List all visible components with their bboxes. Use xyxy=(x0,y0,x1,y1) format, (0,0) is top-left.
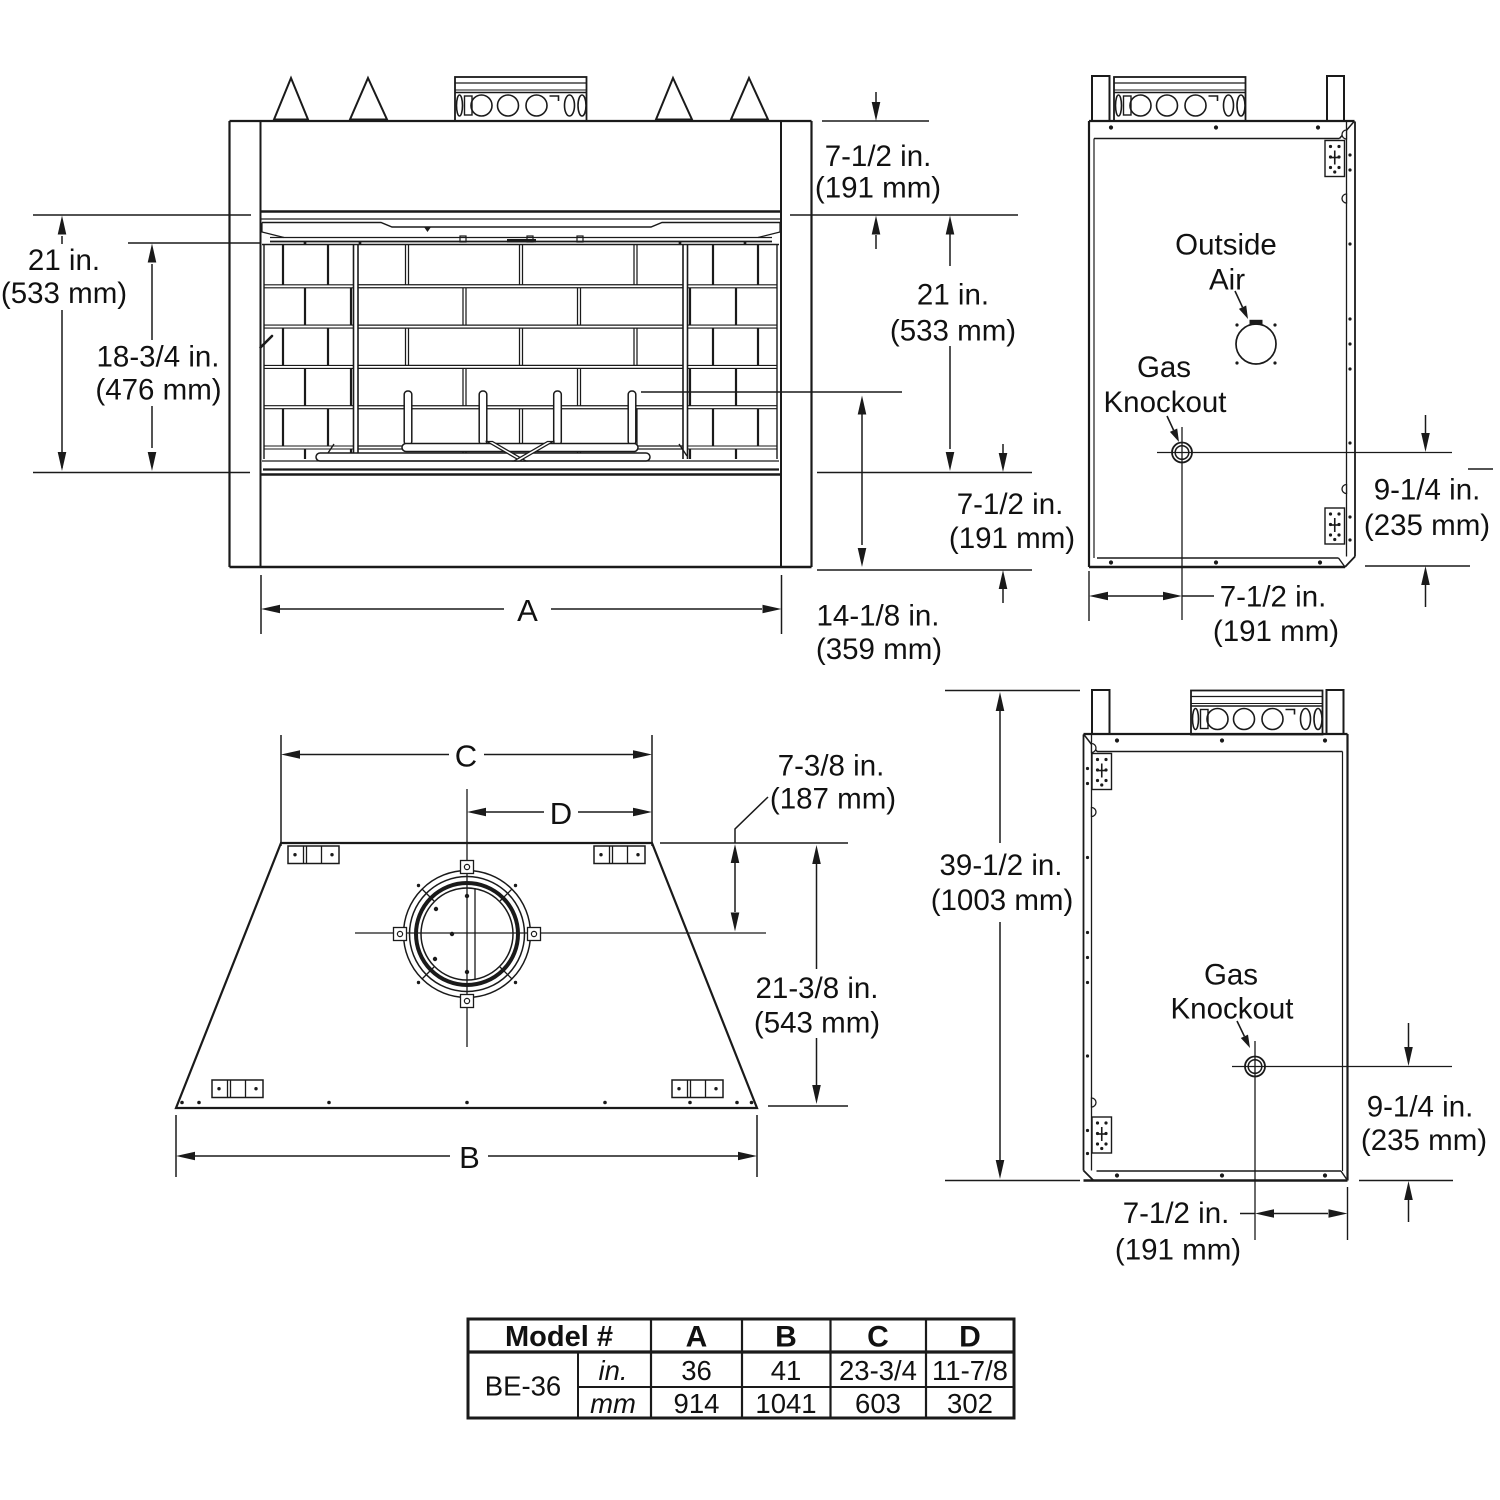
svg-text:36: 36 xyxy=(681,1355,712,1386)
svg-text:mm: mm xyxy=(590,1388,636,1419)
svg-text:D: D xyxy=(550,796,572,831)
svg-text:in.: in. xyxy=(598,1355,627,1386)
svg-text:302: 302 xyxy=(947,1388,993,1419)
svg-text:B: B xyxy=(459,1140,480,1175)
svg-text:(476 mm): (476 mm) xyxy=(95,374,221,407)
svg-text:41: 41 xyxy=(771,1355,802,1386)
svg-text:23-3/4: 23-3/4 xyxy=(839,1355,917,1386)
svg-text:(191 mm): (191 mm) xyxy=(1213,615,1339,648)
svg-text:Knockout: Knockout xyxy=(1171,993,1294,1026)
svg-text:A: A xyxy=(517,593,538,628)
svg-text:Knockout: Knockout xyxy=(1104,386,1227,419)
svg-text:7-3/8 in.: 7-3/8 in. xyxy=(778,750,885,783)
svg-text:(1003 mm): (1003 mm) xyxy=(931,884,1074,917)
svg-text:18-3/4 in.: 18-3/4 in. xyxy=(97,341,220,374)
svg-text:14-1/8 in.: 14-1/8 in. xyxy=(817,600,940,633)
svg-text:C: C xyxy=(867,1321,889,1354)
svg-text:BE-36: BE-36 xyxy=(485,1371,561,1402)
svg-text:Gas: Gas xyxy=(1204,959,1258,992)
svg-text:(533 mm): (533 mm) xyxy=(890,315,1016,348)
svg-text:9-1/4 in.: 9-1/4 in. xyxy=(1374,474,1481,507)
svg-text:(533 mm): (533 mm) xyxy=(1,277,127,310)
svg-text:21 in.: 21 in. xyxy=(28,244,100,277)
svg-text:7-1/2 in.: 7-1/2 in. xyxy=(1220,581,1327,614)
svg-text:(187 mm): (187 mm) xyxy=(770,783,896,816)
svg-text:Air: Air xyxy=(1209,264,1245,297)
svg-text:11-7/8: 11-7/8 xyxy=(932,1355,1008,1386)
svg-text:914: 914 xyxy=(674,1388,720,1419)
svg-text:(191 mm): (191 mm) xyxy=(815,172,941,205)
svg-text:Model #: Model # xyxy=(505,1321,613,1353)
svg-text:D: D xyxy=(959,1321,981,1354)
svg-text:9-1/4 in.: 9-1/4 in. xyxy=(1367,1091,1474,1124)
svg-text:Gas: Gas xyxy=(1137,351,1191,384)
svg-text:1041: 1041 xyxy=(755,1388,816,1419)
svg-text:A: A xyxy=(686,1321,708,1354)
svg-text:(235 mm): (235 mm) xyxy=(1364,509,1490,542)
svg-text:7-1/2 in.: 7-1/2 in. xyxy=(957,488,1064,521)
svg-text:(191 mm): (191 mm) xyxy=(1115,1234,1241,1267)
svg-text:21 in.: 21 in. xyxy=(917,279,989,312)
svg-text:B: B xyxy=(775,1321,797,1354)
svg-text:21-3/8 in.: 21-3/8 in. xyxy=(756,972,879,1005)
svg-text:603: 603 xyxy=(855,1388,901,1419)
svg-text:C: C xyxy=(455,739,477,774)
svg-text:(235 mm): (235 mm) xyxy=(1361,1124,1487,1157)
svg-text:(191 mm): (191 mm) xyxy=(949,522,1075,555)
svg-text:(543 mm): (543 mm) xyxy=(754,1007,880,1040)
svg-text:7-1/2 in.: 7-1/2 in. xyxy=(825,140,932,173)
svg-text:(359 mm): (359 mm) xyxy=(816,633,942,666)
svg-text:39-1/2 in.: 39-1/2 in. xyxy=(940,849,1063,882)
svg-text:Outside: Outside xyxy=(1175,229,1277,262)
svg-text:7-1/2 in.: 7-1/2 in. xyxy=(1123,1197,1230,1230)
